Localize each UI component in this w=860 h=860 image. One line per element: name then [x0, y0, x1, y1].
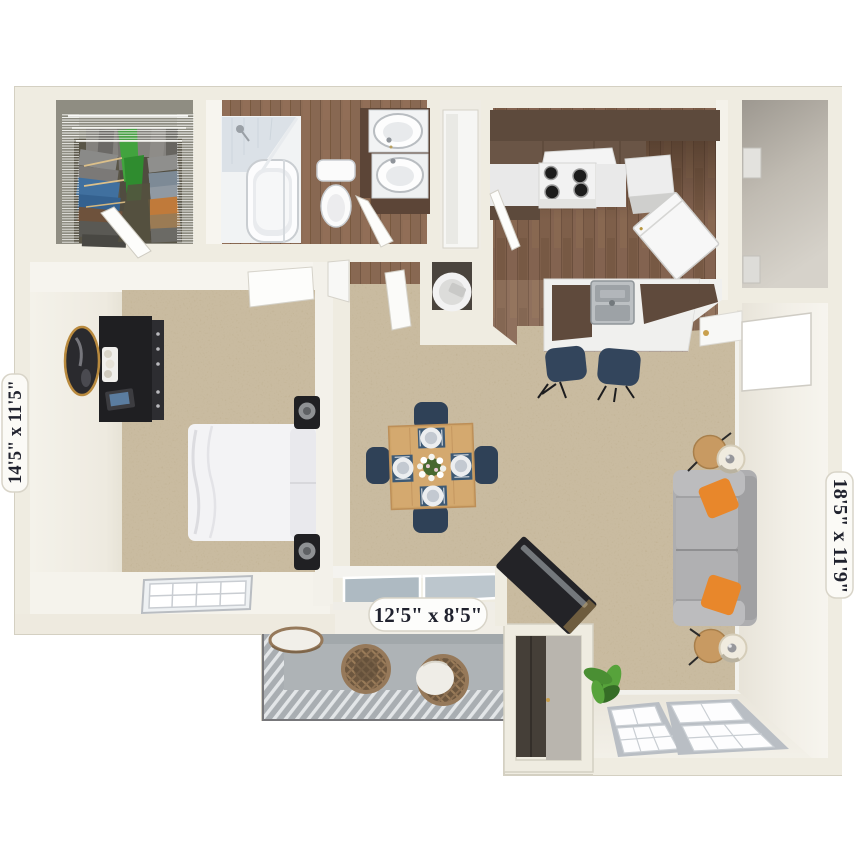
svg-text:14'5" x 11'5": 14'5" x 11'5": [6, 380, 26, 484]
svg-text:18'5" x 11'9": 18'5" x 11'9": [829, 478, 851, 593]
svg-text:12'5" x 8'5": 12'5" x 8'5": [374, 603, 483, 627]
